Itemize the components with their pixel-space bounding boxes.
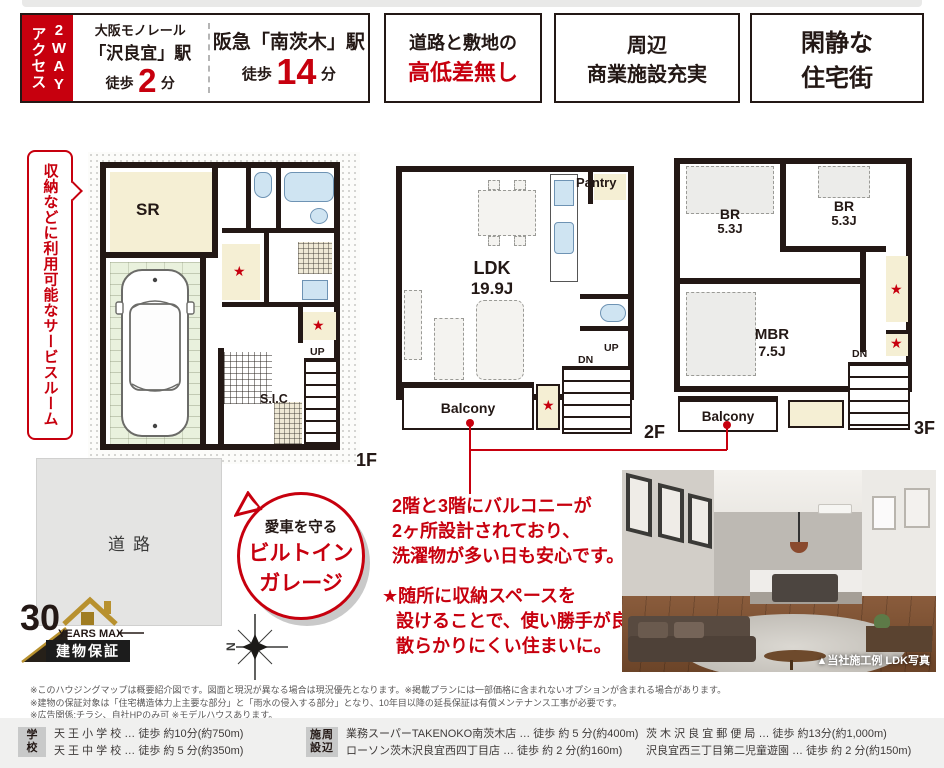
photo-cushion bbox=[638, 622, 668, 638]
wall bbox=[860, 252, 866, 352]
connector-line bbox=[469, 449, 727, 451]
f1-sic-label: S.I.C bbox=[260, 392, 288, 406]
photo-frame bbox=[872, 496, 896, 530]
facility-list-right: 茨 木 沢 良 宜 郵 便 局 … 徒歩 約13分(約1,000m) 沢良宜西三… bbox=[646, 726, 911, 760]
house-window-icon bbox=[81, 612, 94, 625]
f2-floor-label: 2F bbox=[644, 422, 665, 443]
f2-dn-label: DN bbox=[578, 354, 593, 366]
storage-star-icon: ★ bbox=[890, 336, 903, 350]
flyer-page: アクセス 2WAY 大阪モノレール 「沢良宜」駅 徒歩 2 分 阪急「南茨木」駅… bbox=[0, 0, 944, 768]
facility-item: 沢良宜西三丁目第二児童遊園 … 徒歩 約 2 分(約150m) bbox=[646, 743, 911, 760]
balcony-note-line: 2階と3階にバルコニーが bbox=[392, 494, 624, 519]
service-room-callout: 収納などに利用可能なサービスルーム bbox=[27, 150, 73, 440]
facility-label-line1: 施周 bbox=[309, 729, 335, 742]
wall bbox=[246, 166, 251, 228]
wall bbox=[222, 302, 340, 307]
f1-garage bbox=[110, 262, 200, 444]
chair bbox=[514, 236, 526, 246]
feature1-line2: 高低差無し bbox=[408, 55, 518, 87]
top-edge-strip bbox=[22, 0, 922, 7]
garage-bubble: 愛車を守る ビルトイン ガレージ bbox=[237, 492, 365, 620]
station1-walk: 徒歩 bbox=[106, 75, 134, 91]
storage-note-line: ★随所に収納スペースを bbox=[382, 584, 647, 609]
wall bbox=[780, 162, 786, 250]
f3-br1-size: 5.3J bbox=[708, 222, 752, 237]
compass-north: N bbox=[224, 642, 238, 651]
station2-block: 阪急「南茨木」駅 徒歩 14 分 bbox=[210, 27, 368, 90]
facility-item: 茨 木 沢 良 宜 郵 便 局 … 徒歩 約13分(約1,000m) bbox=[646, 726, 911, 743]
f2-ldk-name: LDK bbox=[442, 258, 542, 279]
wall bbox=[276, 166, 281, 228]
floorplan-2f: Pantry LDK 19.9J UP DN ★ Balcony bbox=[394, 158, 644, 444]
facility-list-left: 業務スーパーTAKENOKO南茨木店 … 徒歩 約 5 分(約400m) ローソ… bbox=[346, 726, 638, 760]
f3-br2-label: BR 5.3J bbox=[822, 198, 866, 229]
balcony-note-line: 洗濯物が多い日も安心です。 bbox=[392, 544, 624, 569]
photo-sofa-seat bbox=[628, 636, 756, 662]
wall bbox=[200, 258, 206, 450]
photo-table-leg bbox=[790, 660, 793, 670]
station2-unit: 分 bbox=[321, 66, 336, 83]
f3-mbr-size: 7.5J bbox=[746, 343, 798, 359]
warranty-logo-graphic: 30 YEARS MAX 建物保証 bbox=[14, 592, 144, 666]
wall bbox=[298, 307, 303, 343]
bubble-pointer bbox=[234, 491, 268, 523]
sink-fixture bbox=[554, 222, 574, 254]
toilet-fixture bbox=[600, 304, 626, 322]
school-label-box: 学 校 bbox=[18, 727, 46, 757]
wall bbox=[218, 348, 224, 450]
storage-star-icon: ★ bbox=[542, 398, 555, 412]
facility-item: 業務スーパーTAKENOKO南茨木店 … 徒歩 約 5 分(約400m) bbox=[346, 726, 638, 743]
station2-name: 阪急「南茨木」駅 bbox=[213, 27, 365, 54]
chimney-icon bbox=[104, 601, 111, 614]
f1-sr-label: SR bbox=[136, 200, 160, 220]
feature1-line1: 道路と敷地の bbox=[409, 29, 517, 55]
f3-dn-label: DN bbox=[852, 348, 867, 360]
compass: N bbox=[222, 614, 288, 680]
sofa bbox=[434, 318, 464, 380]
storage-star-icon: ★ bbox=[312, 318, 325, 332]
disclaimer-line: ※建物の保証対象は「住宅構造体力上主要な部分」と「雨水の侵入する部分」となり、1… bbox=[30, 697, 726, 710]
callout-pointer bbox=[63, 181, 83, 201]
floorplan-3f: BR 5.3J BR 5.3J MBR 7.5J ★ ★ DN Balcony bbox=[672, 150, 918, 440]
floorplan-1f: SR ★ bbox=[88, 152, 360, 464]
school-label-line2: 校 bbox=[21, 742, 43, 755]
warranty-years-max: YEARS MAX bbox=[58, 628, 124, 640]
photo-caption: ▲当社施工例 LDK写真 bbox=[816, 652, 930, 668]
chair bbox=[488, 180, 500, 190]
f2-up-label: UP bbox=[604, 342, 619, 354]
station1-block: 大阪モノレール 「沢良宜」駅 徒歩 2 分 bbox=[73, 20, 208, 97]
school-item: 天 王 中 学 校 … 徒歩 約 5 分(約350m) bbox=[54, 743, 243, 760]
stove-fixture bbox=[554, 180, 574, 206]
photo-pendant-cord bbox=[798, 512, 800, 544]
access-tab: アクセス 2WAY bbox=[22, 15, 73, 101]
feature-quiet: 閑静な 住宅街 bbox=[750, 13, 924, 103]
station2-minutes: 14 bbox=[276, 51, 316, 92]
f3-mbr-label: MBR 7.5J bbox=[746, 326, 798, 359]
chair bbox=[488, 236, 500, 246]
school-label-line1: 学 bbox=[21, 729, 43, 742]
photo-cushion bbox=[674, 622, 704, 638]
wall bbox=[680, 278, 860, 284]
facility-item: ローソン茨木沢良宜西四丁目店 … 徒歩 約 2 分(約160m) bbox=[346, 743, 638, 760]
toilet-fixture bbox=[254, 172, 272, 198]
warranty-years: 30 bbox=[20, 597, 60, 638]
access-tab-line1: 2WAY bbox=[50, 22, 67, 94]
feature3-line1: 閑静な bbox=[801, 23, 873, 58]
station1-minutes: 2 bbox=[138, 62, 156, 99]
access-tab-line2: アクセス bbox=[27, 26, 48, 90]
station2-walk: 徒歩 bbox=[242, 66, 272, 83]
balcony-note-line: 2ヶ所設計されており、 bbox=[392, 519, 624, 544]
f1-room-sr bbox=[110, 172, 212, 252]
f2-pantry-label: Pantry bbox=[576, 176, 616, 191]
connector-line bbox=[726, 426, 728, 450]
f3-br1-name: BR bbox=[708, 206, 752, 222]
f1-up-label: UP bbox=[310, 346, 325, 358]
wall bbox=[780, 246, 886, 252]
photo-window bbox=[658, 483, 684, 543]
station1-rail: 大阪モノレール bbox=[95, 20, 186, 39]
feature3-line2: 住宅街 bbox=[801, 58, 873, 93]
ldk-photo: ▲当社施工例 LDK写真 bbox=[622, 470, 936, 672]
access-panel: アクセス 2WAY 大阪モノレール 「沢良宜」駅 徒歩 2 分 阪急「南茨木」駅… bbox=[20, 13, 370, 103]
wall bbox=[580, 294, 634, 299]
disclaimers: ※このハウジングマップは概要紹介図です。図面と現況が異なる場合は現況優先となりま… bbox=[30, 684, 726, 722]
disclaimer-line: ※このハウジングマップは概要紹介図です。図面と現況が異なる場合は現況優先となりま… bbox=[30, 684, 726, 697]
station1-name: 「沢良宜」駅 bbox=[89, 39, 191, 64]
footer-bar: 学 校 天 王 小 学 校 … 徒歩 約10分(約750m) 天 王 中 学 校… bbox=[0, 718, 944, 768]
compass-icon: N bbox=[222, 614, 288, 680]
wall bbox=[222, 228, 340, 233]
feature-flat-site: 道路と敷地の 高低差無し bbox=[384, 13, 542, 103]
f1-floor-label: 1F bbox=[356, 450, 377, 471]
storage-note: ★随所に収納スペースを 設けることで、使い勝手が良く 散らかりにくい住まいに。 bbox=[382, 584, 647, 659]
wall bbox=[580, 326, 634, 331]
f1-stairs bbox=[304, 358, 338, 444]
bathtub-fixture bbox=[284, 172, 334, 202]
f3-floor-label: 3F bbox=[914, 418, 935, 439]
photo-window bbox=[688, 493, 712, 549]
storage-note-line: 設けることで、使い勝手が良く bbox=[382, 609, 647, 634]
f3-br2-size: 5.3J bbox=[822, 214, 866, 229]
warranty-label: 建物保証 bbox=[56, 643, 120, 659]
f2-ldk-size: 19.9J bbox=[442, 279, 542, 299]
photo-frame bbox=[904, 488, 930, 528]
f2-stairs bbox=[562, 366, 632, 434]
f3-closet-c bbox=[788, 400, 844, 428]
f3-stairs bbox=[848, 362, 910, 430]
service-room-callout-text: 収納などに利用可能なサービスルーム bbox=[40, 163, 61, 427]
photo-dining-set bbox=[772, 574, 838, 602]
bed bbox=[818, 166, 870, 198]
bath-fixture bbox=[310, 208, 328, 224]
feature2-line2: 商業施設充実 bbox=[587, 58, 707, 87]
wall bbox=[264, 233, 269, 303]
feature2-line1: 周辺 bbox=[627, 29, 667, 58]
road-label: 道路 bbox=[100, 530, 158, 555]
connector-line bbox=[469, 424, 471, 494]
school-item: 天 王 小 学 校 … 徒歩 約10分(約750m) bbox=[54, 726, 243, 743]
f2-balcony-label: Balcony bbox=[441, 400, 495, 416]
photo-aircon bbox=[818, 504, 852, 514]
photo-window bbox=[626, 473, 652, 537]
storage-star-icon: ★ bbox=[233, 264, 246, 278]
dining-table bbox=[478, 190, 536, 236]
balcony-note: 2階と3階にバルコニーが 2ヶ所設計されており、 洗濯物が多い日も安心です。 bbox=[392, 494, 624, 569]
storage-note-line: 散らかりにくい住まいに。 bbox=[382, 634, 647, 659]
f1-sic-floor bbox=[274, 402, 302, 444]
f2-ldk-label: LDK 19.9J bbox=[442, 258, 542, 298]
garage-bubble-line2: ビルトイン bbox=[249, 537, 354, 567]
garage-bubble-line1: 愛車を守る bbox=[265, 516, 338, 537]
f1-shower bbox=[298, 242, 332, 274]
facility-label-line2: 設辺 bbox=[309, 742, 335, 755]
photo-plant bbox=[874, 614, 890, 628]
chair bbox=[514, 180, 526, 190]
car-illustration bbox=[110, 262, 200, 444]
warranty-logo: 30 YEARS MAX 建物保証 bbox=[14, 592, 144, 666]
sofa-large bbox=[476, 300, 524, 380]
garage-bubble-line3: ガレージ bbox=[259, 567, 343, 597]
photo-tv-board bbox=[866, 626, 932, 652]
f3-mbr-name: MBR bbox=[746, 326, 798, 343]
station1-unit: 分 bbox=[161, 75, 175, 91]
f3-br2-name: BR bbox=[822, 198, 866, 214]
f3-br1-label: BR 5.3J bbox=[708, 206, 752, 237]
washbasin-fixture bbox=[302, 280, 328, 300]
cabinet bbox=[404, 290, 422, 360]
school-list: 天 王 小 学 校 … 徒歩 約10分(約750m) 天 王 中 学 校 … 徒… bbox=[54, 726, 243, 760]
facility-label-box: 施周 設辺 bbox=[306, 727, 338, 757]
feature-shops: 周辺 商業施設充実 bbox=[554, 13, 740, 103]
wall bbox=[212, 166, 218, 258]
storage-star-icon: ★ bbox=[890, 282, 903, 296]
